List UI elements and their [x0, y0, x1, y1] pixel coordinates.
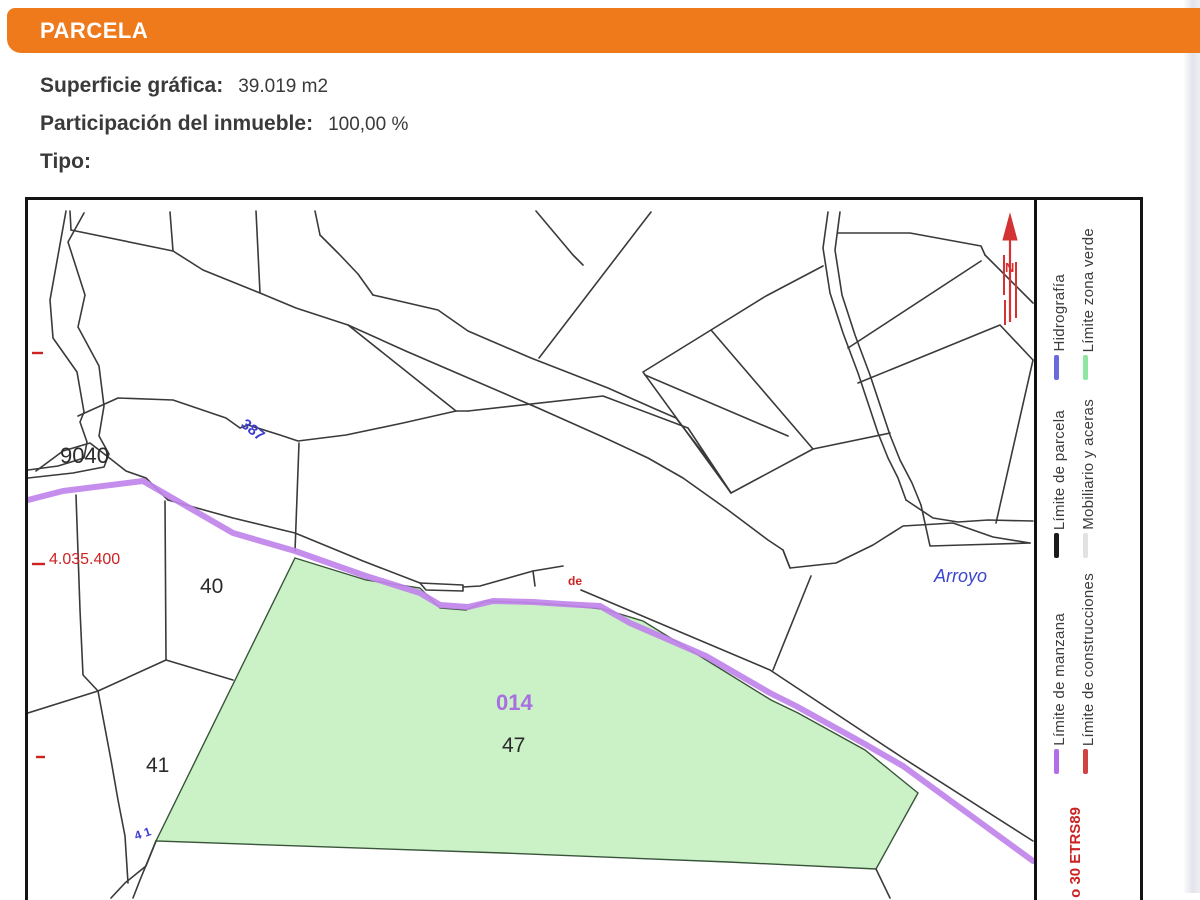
- de-label: de: [568, 574, 582, 588]
- legend-item-limite-construcciones: Límite de construcciones: [1080, 200, 1097, 746]
- coordinate-ticks: [32, 353, 45, 757]
- cadastral-parcel-page: { "header": { "title": "PARCELA" }, "inf…: [0, 0, 1200, 893]
- manzana-code-label: 014: [496, 690, 533, 715]
- north-arrow-label: N: [1005, 260, 1014, 275]
- parcel-41-label: 41: [146, 754, 169, 777]
- section-header-bar: PARCELA: [7, 8, 1200, 53]
- page-title: PARCELA: [40, 8, 148, 53]
- parcel-41-small-label: 4 1: [133, 824, 154, 843]
- tipo-label: Tipo:: [40, 150, 91, 173]
- legend-item-limite-manzana: Límite de manzana: [1051, 200, 1068, 746]
- parcel-code-label: 47: [502, 734, 525, 757]
- road-387-label: 387: [238, 416, 268, 445]
- scan-shadow-band: [1183, 0, 1200, 893]
- legend-swatch-limite-manzana: [1054, 749, 1059, 774]
- participacion-value: 100,00 %: [328, 114, 408, 135]
- tipo-row: Tipo:: [40, 150, 106, 174]
- parcel-40-label: 40: [200, 575, 223, 598]
- superficie-value: 39.019 m2: [238, 76, 328, 97]
- cadastral-map-figure: N 9040 387 40 41 4 1 de 014 47 Arroyo 4.…: [25, 197, 1143, 900]
- participacion-label: Participación del inmueble:: [40, 112, 313, 135]
- block-9040-label: 9040: [60, 443, 109, 468]
- superficie-row: Superficie gráfica:39.019 m2: [40, 74, 328, 98]
- superficie-label: Superficie gráfica:: [40, 74, 223, 97]
- y-coordinate-label: 4.035.400: [49, 551, 120, 568]
- legend-panel: Hidrografía Límite zona verde Límite de …: [1034, 200, 1140, 900]
- arroyo-label: Arroyo: [933, 566, 987, 586]
- cadastral-map: N 9040 387 40 41 4 1 de 014 47 Arroyo 4.…: [28, 200, 1034, 900]
- participacion-row: Participación del inmueble:100,00 %: [40, 112, 408, 136]
- crs-note: o 30 ETRS89: [1067, 760, 1084, 898]
